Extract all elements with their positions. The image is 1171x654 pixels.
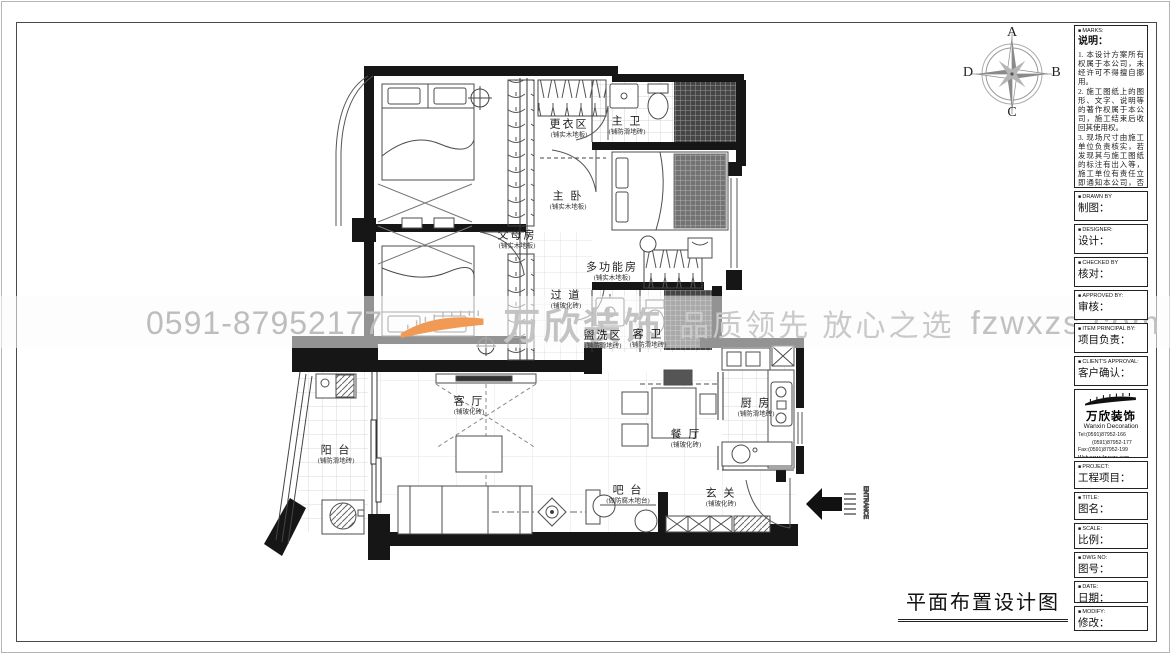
field-designer: DESIGNER:设计：: [1074, 224, 1148, 254]
field-drawn-by: DRAWN BY制图：: [1074, 191, 1148, 221]
room-label-guest-bath: 客 卫(铺防滑地砖): [630, 329, 667, 349]
room-label-bar: 吧 台(做防腐木地台): [606, 485, 649, 505]
company-tel-2: (0591)87952-177: [1078, 440, 1144, 447]
company-logo-box: 万欣装饰 Wanxin Decoration Tel:(0591)87952-1…: [1074, 389, 1148, 458]
field-title: TITLE:图名：: [1074, 492, 1148, 520]
compass-letter-d: D: [963, 65, 973, 81]
field-client-approval: CLIENT'S APPROVAL:客户确认：: [1074, 356, 1148, 386]
company-tel-1: Tel:(0591)87952-166: [1078, 432, 1144, 439]
notes-box: MARKS: 说明： 1. 本设计方案所有权属于本公司，未经许可不得擅自挪用。 …: [1074, 25, 1148, 188]
note-item: 2. 施工图纸上的图形、文字、说明等的著作权属于本公司，施工结束后收回其使用权。: [1078, 87, 1144, 132]
entrance-label: ENTRANCE: [862, 486, 868, 519]
room-label-entry: 玄 关(铺玻化砖): [706, 488, 737, 508]
field-date: DATE:日期：: [1074, 581, 1148, 603]
watermark-slogan: 品质领先 放心之选: [679, 301, 954, 345]
room-label-master-bed: 主 卧(铺实木地板): [550, 191, 587, 211]
note-item: 1. 本设计方案所有权属于本公司，未经许可不得擅自挪用。: [1078, 50, 1144, 86]
room-label-multifunction: 多功能房(铺实木地板): [586, 262, 638, 282]
field-project: PROJECT:工程项目：: [1074, 461, 1148, 489]
company-fax: Fax:(0591)87952-199: [1078, 447, 1144, 454]
bridge-logo-small-icon: [1083, 393, 1139, 406]
bridge-logo-icon: [399, 306, 487, 340]
compass-letter-b: B: [1051, 65, 1060, 81]
title-block: MARKS: 说明： 1. 本设计方案所有权属于本公司，未经许可不得擅自挪用。 …: [1074, 25, 1148, 634]
watermark-phone: 0591-87952177: [146, 305, 383, 342]
drawing-sheet: { "sheet": { "title": "平面布置设计图" }, "comp…: [0, 0, 1171, 654]
field-modify: MODIFY:修改：: [1074, 606, 1148, 631]
room-label-dining: 餐 厅(铺玻化砖): [671, 429, 702, 449]
room-label-balcony: 阳 台(铺防滑地砖): [318, 445, 355, 465]
room-label-kitchen: 厨 房(铺防滑地砖): [738, 398, 775, 418]
room-label-wash-area: 盥洗区(铺防滑地砖): [584, 330, 623, 350]
company-web: Web:www.fzwxzs.com: [1078, 455, 1144, 458]
master-bed: [612, 152, 728, 258]
room-label-master-bath: 主 卫(铺防滑地砖): [609, 116, 646, 136]
entrance-arrow-icon: [806, 488, 842, 520]
room-label-dressing: 更衣区(铺实木地板): [550, 119, 589, 139]
bed-room1: [378, 84, 474, 228]
sheet-title: 平面布置设计图: [898, 586, 1068, 622]
note-item: 3. 现场尺寸由施工单位负责核实，若发现其与施工图纸的标注有出入等，施工单位有责…: [1078, 133, 1144, 188]
company-name-cn: 万欣装饰: [1078, 411, 1144, 423]
field-dwg-no: DWG NO:图号：: [1074, 552, 1148, 578]
field-scale: SCALE:比例：: [1074, 523, 1148, 549]
room-label-corridor: 过 道(铺玻化砖): [551, 290, 582, 310]
notes-box-cn-label: 说明：: [1078, 36, 1144, 49]
field-approved-by: APPROVED BY:审核：: [1074, 290, 1148, 320]
room-label-parents: 父母房(铺实木地板): [498, 230, 537, 250]
field-principal: ITEM PRINCIPAL BY:项目负责：: [1074, 323, 1148, 353]
compass-letter-a: A: [1007, 25, 1017, 41]
field-checked-by: CHECKED BY核对：: [1074, 257, 1148, 287]
room-label-living: 客 厅(铺玻化砖): [454, 396, 485, 416]
company-name-en: Wanxin Decoration: [1078, 423, 1144, 431]
compass-letter-c: C: [1007, 105, 1016, 121]
master-shower-tile: [674, 82, 736, 144]
notes-box-en-label: MARKS:: [1078, 28, 1144, 35]
